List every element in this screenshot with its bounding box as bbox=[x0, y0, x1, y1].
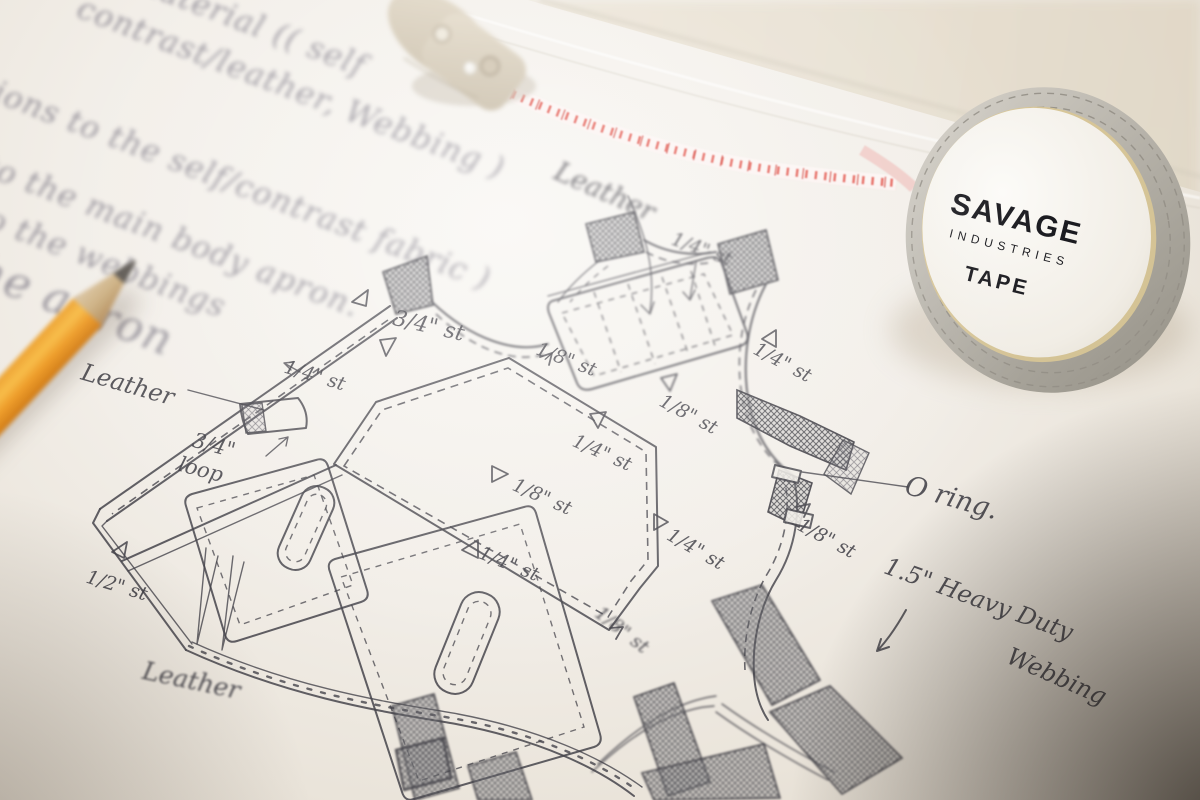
photo-apron-sketch-scene: material (( self contrast/leather, Webbi… bbox=[0, 0, 1200, 800]
side-strap-o-ring bbox=[737, 390, 908, 528]
pocket-slot bbox=[429, 586, 506, 699]
tape-end-clip bbox=[372, 0, 536, 118]
pocket-slot bbox=[273, 481, 340, 575]
webbing-note-arrow bbox=[879, 610, 906, 649]
hip-pocket bbox=[334, 358, 658, 630]
waist-pocket-left bbox=[185, 459, 368, 650]
tape-measure-reel: SAVAGE INDUSTRIES TAPE bbox=[884, 67, 1200, 414]
tool-sketch bbox=[197, 548, 218, 644]
bottom-webbing-straps bbox=[392, 585, 902, 800]
waist-pocket-center bbox=[329, 506, 601, 799]
